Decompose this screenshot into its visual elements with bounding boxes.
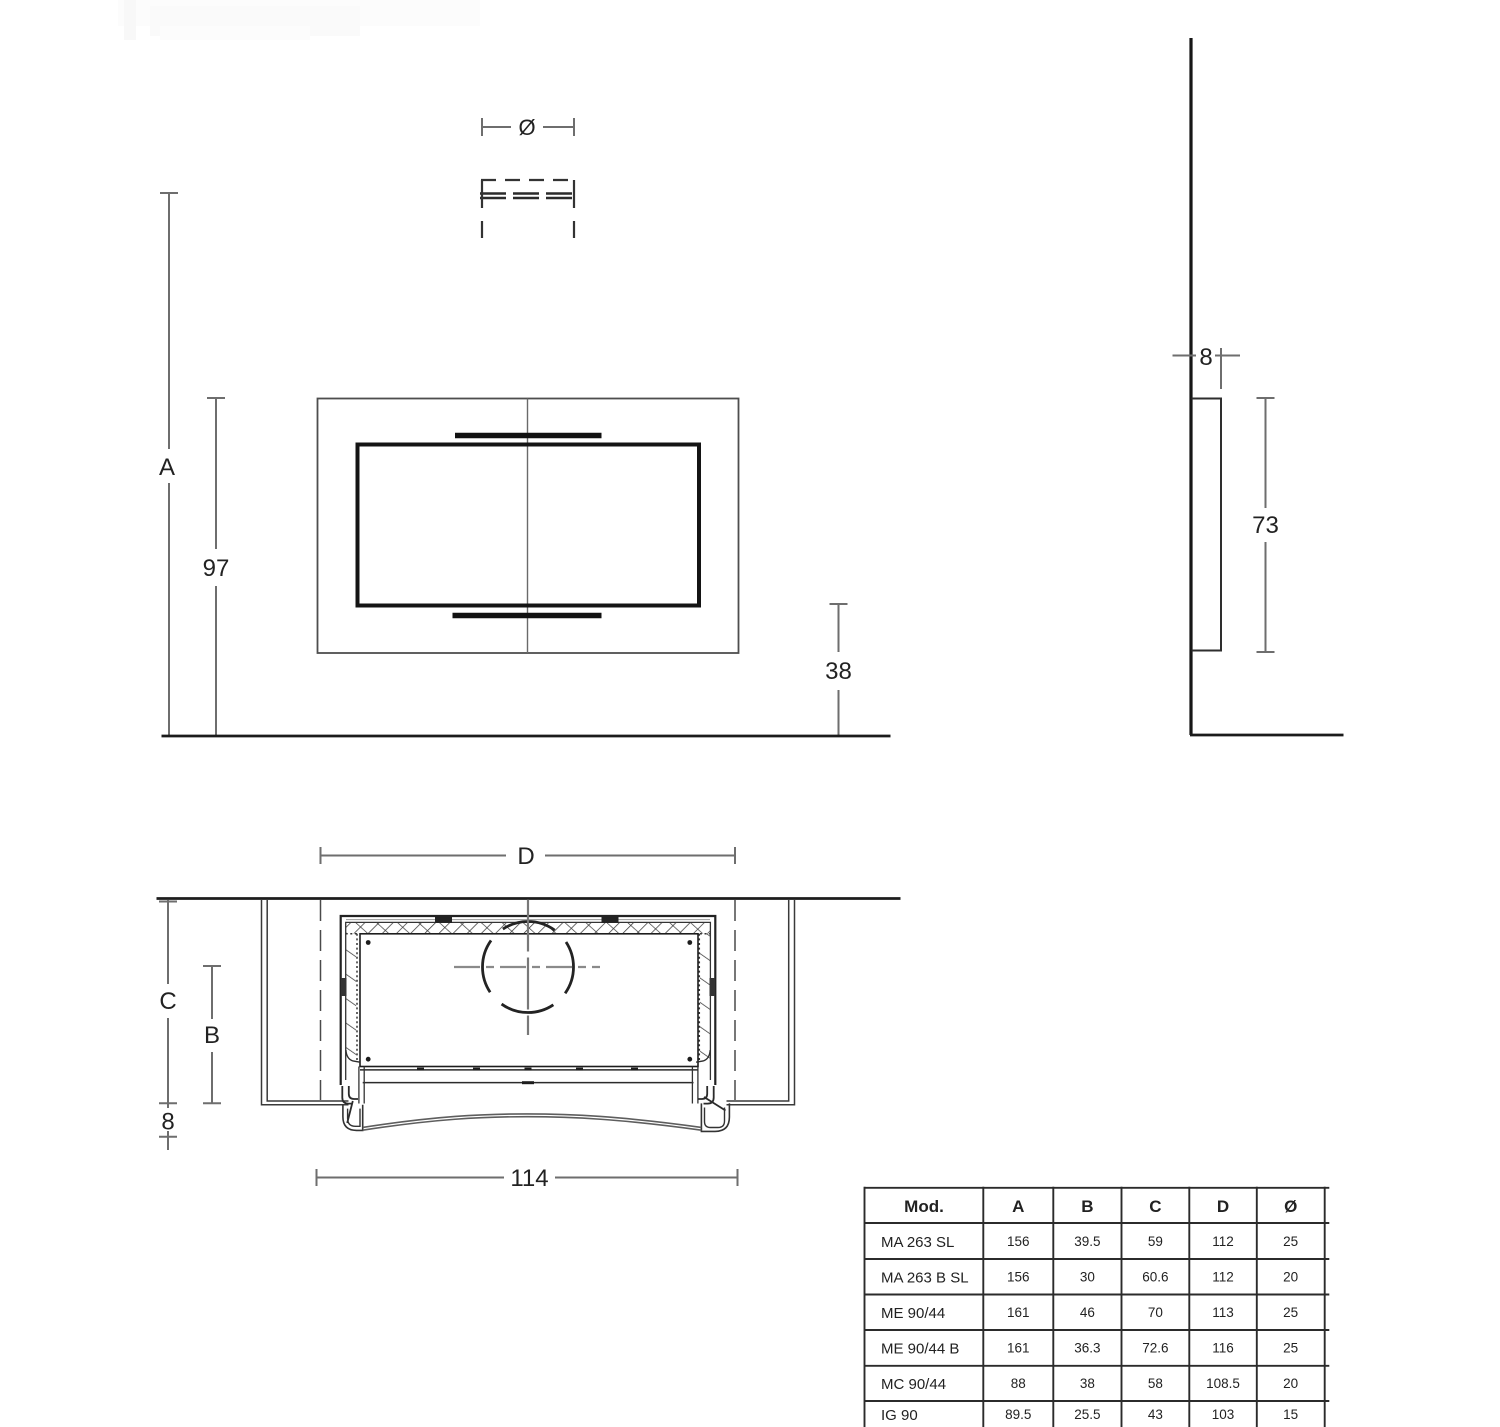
svg-text:161: 161 — [1007, 1305, 1030, 1320]
svg-text:15: 15 — [1283, 1407, 1298, 1422]
svg-text:73: 73 — [1252, 512, 1279, 539]
svg-text:108.5: 108.5 — [1206, 1376, 1240, 1391]
svg-text:A: A — [1012, 1197, 1024, 1216]
svg-text:D: D — [1217, 1197, 1229, 1216]
svg-text:39.5: 39.5 — [1074, 1234, 1100, 1249]
svg-text:MC 90/44: MC 90/44 — [881, 1376, 946, 1393]
svg-text:Mod.: Mod. — [904, 1197, 944, 1216]
svg-text:46: 46 — [1080, 1305, 1095, 1320]
svg-text:25: 25 — [1283, 1305, 1298, 1320]
svg-text:58: 58 — [1148, 1376, 1163, 1391]
svg-text:72.6: 72.6 — [1142, 1341, 1168, 1356]
svg-text:89.5: 89.5 — [1005, 1407, 1031, 1422]
svg-text:B: B — [204, 1022, 220, 1049]
svg-text:8: 8 — [1199, 344, 1212, 371]
svg-text:Ø: Ø — [518, 115, 535, 140]
svg-text:38: 38 — [825, 658, 852, 685]
svg-text:20: 20 — [1283, 1376, 1298, 1391]
svg-text:36.3: 36.3 — [1074, 1341, 1100, 1356]
svg-text:161: 161 — [1007, 1341, 1030, 1356]
svg-text:ME 90/44 B: ME 90/44 B — [881, 1341, 959, 1358]
svg-text:8: 8 — [161, 1109, 174, 1136]
svg-text:MA 263 SL: MA 263 SL — [881, 1234, 954, 1251]
svg-text:60.6: 60.6 — [1142, 1270, 1168, 1285]
svg-text:43: 43 — [1148, 1407, 1163, 1422]
svg-text:116: 116 — [1212, 1341, 1234, 1356]
svg-text:20: 20 — [1283, 1270, 1298, 1285]
svg-text:ME 90/44: ME 90/44 — [881, 1305, 945, 1322]
svg-text:38: 38 — [1080, 1376, 1095, 1391]
svg-text:IG 90: IG 90 — [881, 1407, 918, 1424]
svg-text:112: 112 — [1212, 1234, 1234, 1249]
svg-text:156: 156 — [1007, 1234, 1030, 1249]
svg-text:70: 70 — [1148, 1305, 1163, 1320]
svg-text:112: 112 — [1212, 1270, 1234, 1285]
svg-text:B: B — [1081, 1197, 1093, 1216]
svg-text:59: 59 — [1148, 1234, 1163, 1249]
svg-text:97: 97 — [203, 555, 230, 582]
svg-text:88: 88 — [1011, 1376, 1026, 1391]
svg-text:D: D — [517, 843, 534, 870]
svg-text:A: A — [159, 454, 175, 481]
svg-text:30: 30 — [1080, 1270, 1095, 1285]
svg-text:156: 156 — [1007, 1270, 1030, 1285]
svg-text:Ø: Ø — [1284, 1197, 1297, 1216]
svg-text:25: 25 — [1283, 1341, 1298, 1356]
svg-text:25: 25 — [1283, 1234, 1298, 1249]
svg-text:25.5: 25.5 — [1074, 1407, 1100, 1422]
svg-text:114: 114 — [510, 1165, 548, 1192]
svg-text:103: 103 — [1212, 1407, 1235, 1422]
svg-text:C: C — [1149, 1197, 1161, 1216]
svg-text:113: 113 — [1212, 1305, 1234, 1320]
svg-text:C: C — [159, 988, 176, 1015]
svg-text:MA 263 B SL: MA 263 B SL — [881, 1270, 969, 1287]
